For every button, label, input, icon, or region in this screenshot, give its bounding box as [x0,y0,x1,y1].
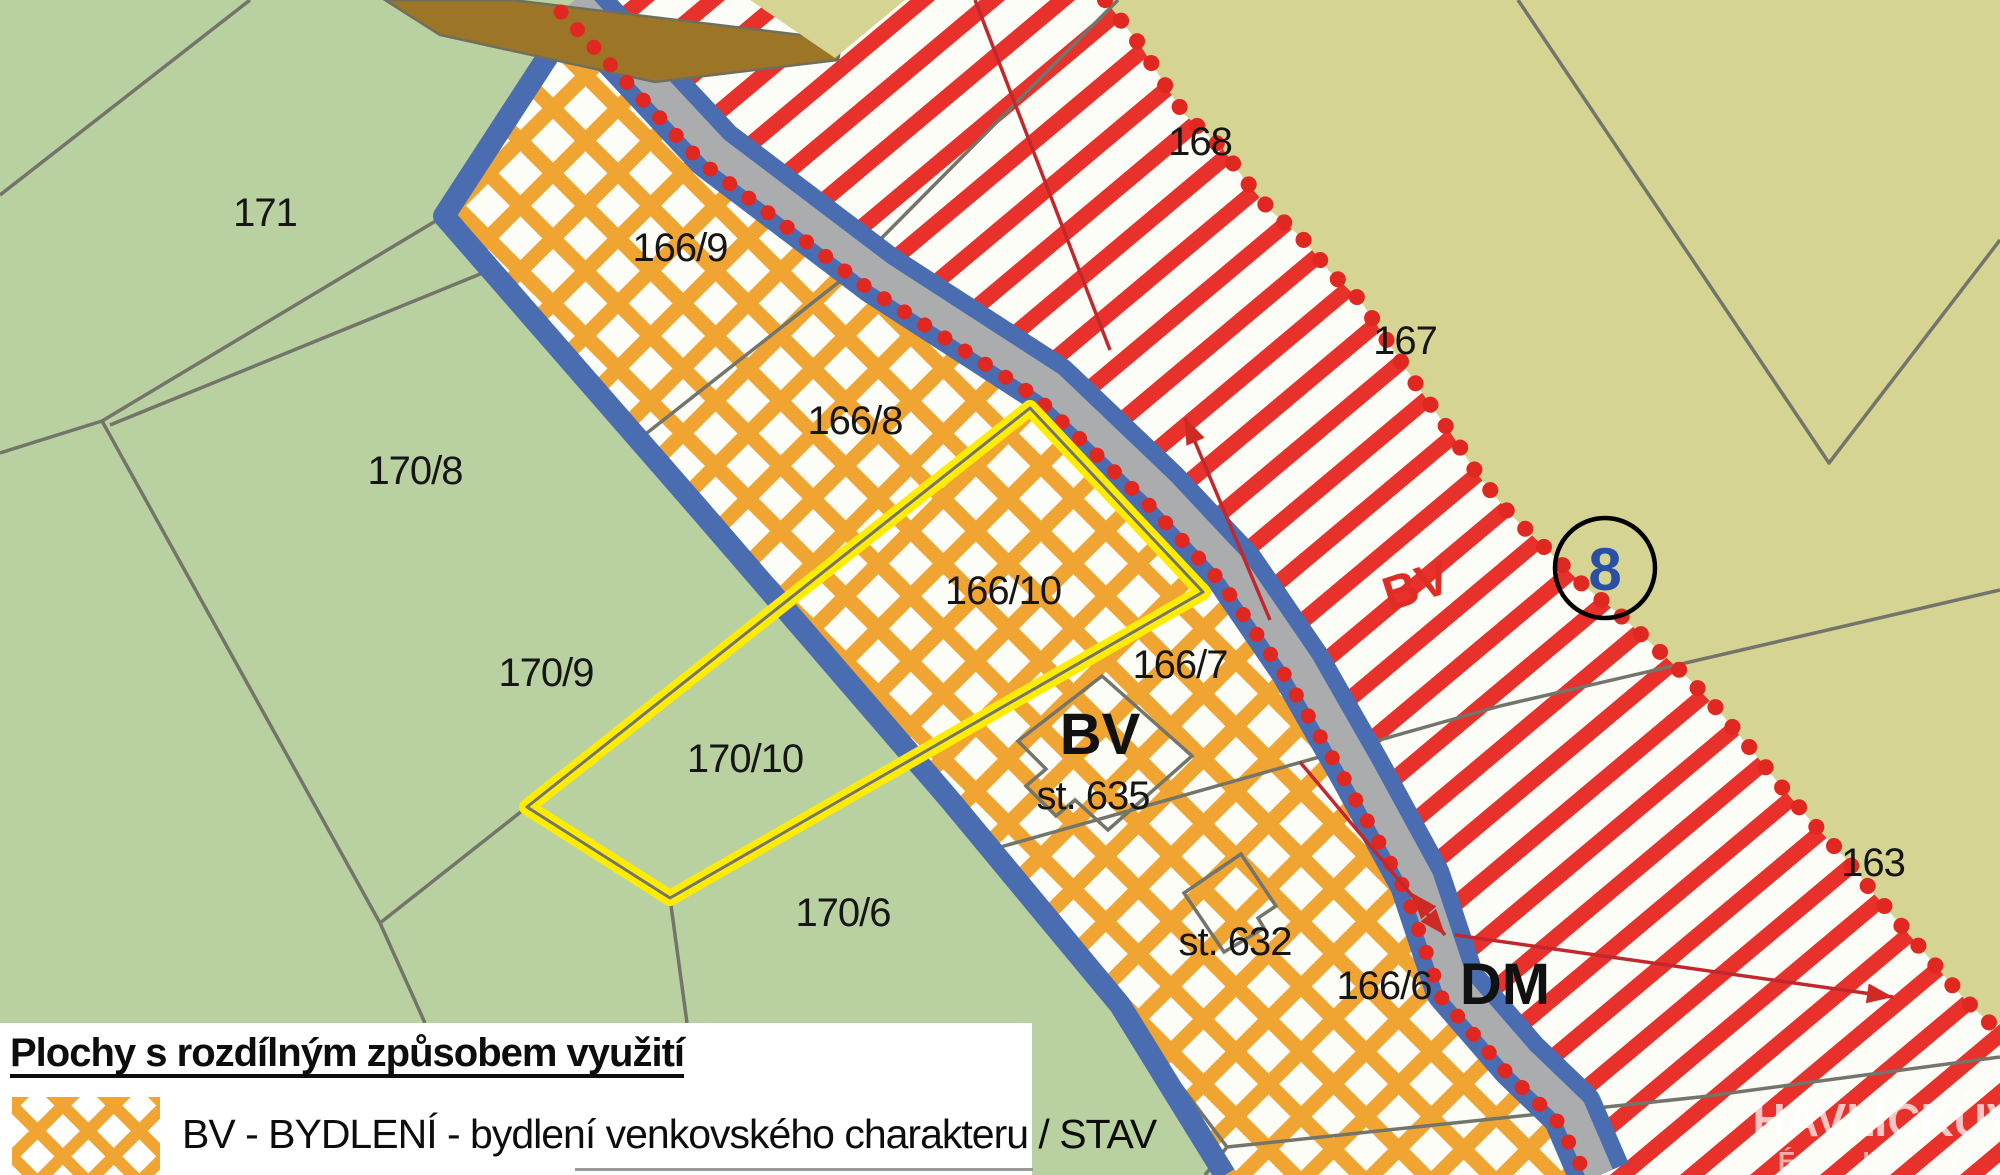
legend-panel: Plochy s rozdílným způsobem využití BV -… [0,1023,1032,1175]
legend-title: Plochy s rozdílným způsobem využití [10,1031,684,1076]
legend-swatch-bv [12,1097,160,1175]
parcel-label-170-8: 170/8 [367,449,462,493]
parcel-label-166-6: 166/6 [1336,964,1431,1008]
parcel-label-163: 163 [1841,841,1905,885]
zone-label-dm: DM [1460,952,1550,1017]
legend-divider [575,1168,1033,1171]
zone-label-bv: BV [1060,702,1141,767]
legend-swatch-pattern [12,1097,160,1175]
parcel-label-166-9: 166/9 [632,226,727,270]
parcel-label-166-10: 166/10 [945,569,1061,613]
parcel-label-170-6: 170/6 [795,891,890,935]
parcel-label-166-8: 166/8 [807,399,902,443]
parcel-label-167: 167 [1373,319,1437,363]
parcel-label-166-7: 166/7 [1132,643,1227,687]
map-canvas: 8 171 166/9 170/8 166/8 166/10 170/9 166… [0,0,2000,1175]
parcel-label-170-9: 170/9 [498,651,593,695]
parcel-label-171: 171 [233,191,297,235]
building-label-st632: st. 632 [1178,920,1291,964]
parcel-label-168: 168 [1168,120,1232,164]
legend-item-label: BV - BYDLENÍ - bydlení venkovského chara… [182,1111,1156,1158]
building-label-st635: st. 635 [1036,774,1149,818]
watermark-text: HAVLÍČKŮV [1753,1091,2000,1146]
parcel-label-170-10: 170/10 [687,737,803,781]
zoning-map-page: 8 171 166/9 170/8 166/8 166/10 170/9 166… [0,0,2000,1175]
watermark-subtext: É L Y [1778,1146,1992,1175]
locality-number: 8 [1588,536,1621,603]
